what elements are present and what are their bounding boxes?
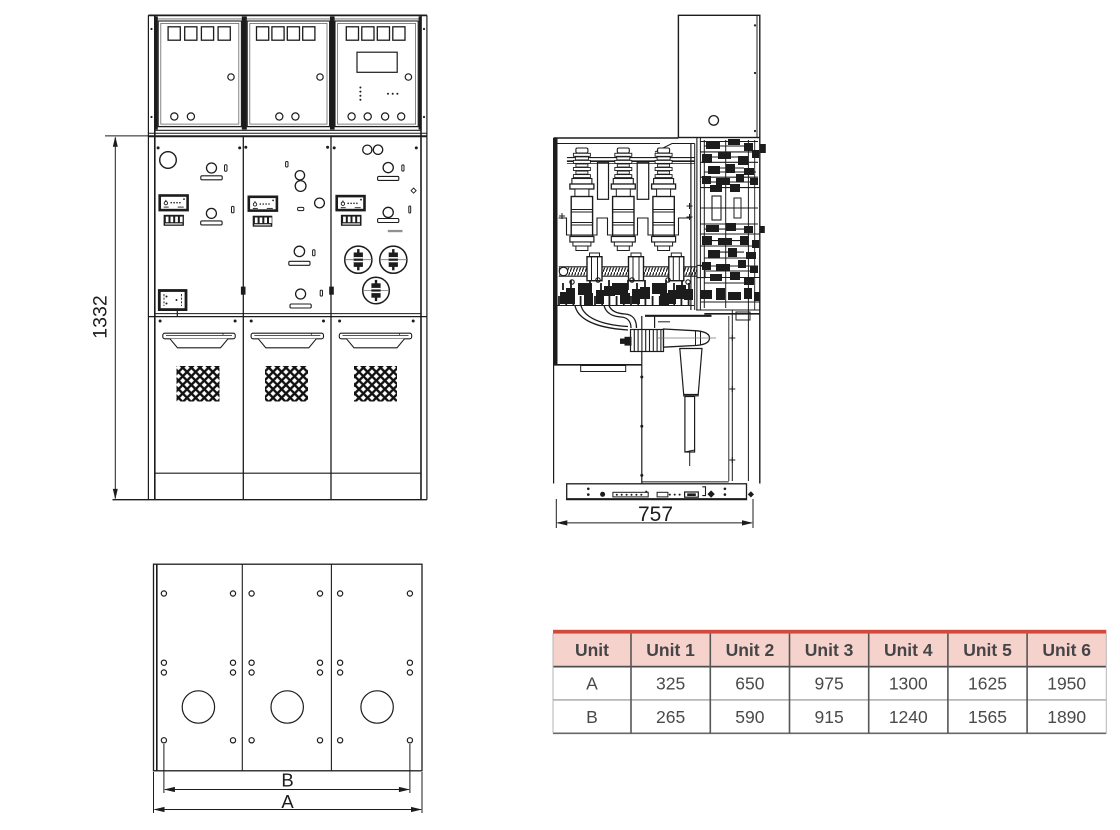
svg-text:975: 975 — [814, 674, 843, 694]
svg-text:Unit 6: Unit 6 — [1042, 640, 1091, 660]
svg-text:1240: 1240 — [889, 707, 928, 727]
svg-text:Unit 5: Unit 5 — [963, 640, 1012, 660]
svg-text:590: 590 — [735, 707, 764, 727]
svg-text:Unit 3: Unit 3 — [805, 640, 854, 660]
svg-text:B: B — [586, 707, 598, 727]
svg-text:1890: 1890 — [1047, 707, 1086, 727]
svg-text:1332: 1332 — [90, 295, 112, 338]
svg-text:Unit 2: Unit 2 — [726, 640, 775, 660]
svg-text:B: B — [281, 769, 293, 790]
svg-text:1300: 1300 — [889, 674, 928, 694]
svg-text:A: A — [281, 791, 294, 812]
svg-text:325: 325 — [656, 674, 685, 694]
svg-text:1565: 1565 — [968, 707, 1007, 727]
svg-text:265: 265 — [656, 707, 685, 727]
svg-text:757: 757 — [638, 503, 673, 526]
svg-text:Unit 1: Unit 1 — [646, 640, 695, 660]
svg-text:1625: 1625 — [968, 674, 1007, 694]
svg-text:Unit 4: Unit 4 — [884, 640, 933, 660]
svg-text:915: 915 — [814, 707, 843, 727]
svg-text:A: A — [586, 674, 598, 694]
svg-text:650: 650 — [735, 674, 764, 694]
svg-text:Unit: Unit — [575, 640, 609, 660]
svg-text:1950: 1950 — [1047, 674, 1086, 694]
